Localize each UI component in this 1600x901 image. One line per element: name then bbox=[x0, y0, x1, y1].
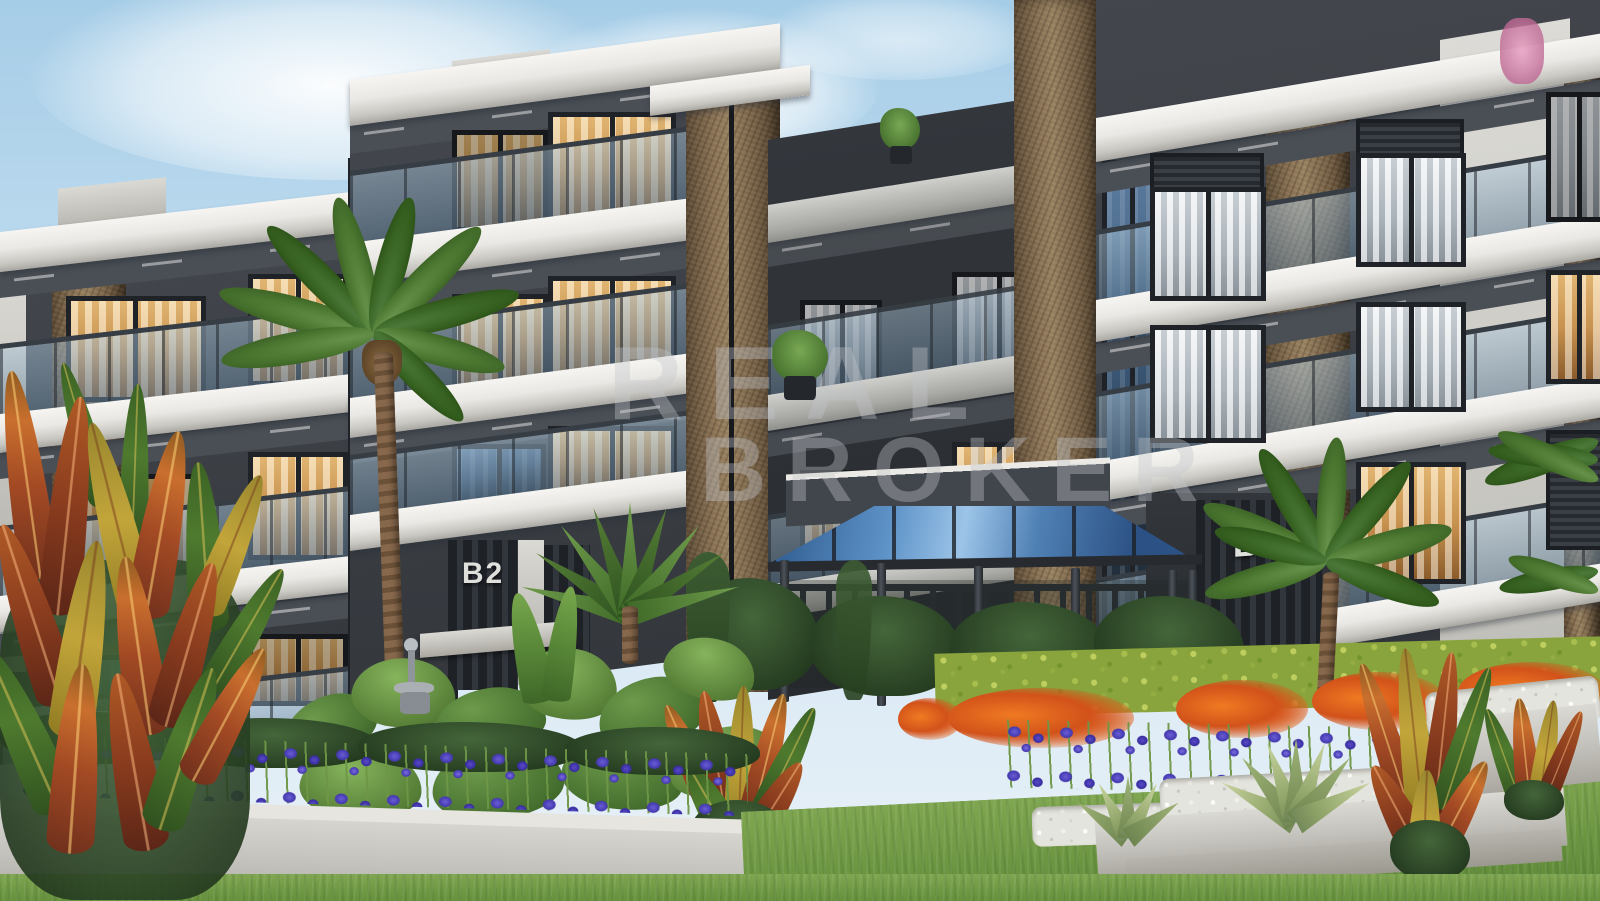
window-gray bbox=[1150, 187, 1266, 301]
balcony-plant bbox=[880, 108, 920, 150]
fountain-base bbox=[400, 692, 430, 714]
plant-pot bbox=[890, 146, 912, 164]
cypress-tree bbox=[836, 560, 872, 700]
lawn bbox=[0, 874, 1600, 901]
window-amber bbox=[1546, 270, 1600, 384]
window-gray bbox=[1356, 153, 1466, 267]
watermark-line2: BROKER bbox=[700, 424, 1219, 516]
architectural-render-scene: B2 B1 bbox=[0, 0, 1600, 901]
window-gray bbox=[1356, 302, 1466, 412]
shrub-base bbox=[1504, 780, 1564, 820]
pink-balcony-flowers bbox=[1500, 18, 1544, 84]
building-label-b2: B2 bbox=[448, 556, 518, 592]
shrub-base bbox=[1390, 820, 1470, 880]
fan-palm-trunk bbox=[622, 606, 638, 664]
fountain-column bbox=[408, 650, 415, 684]
window-gray bbox=[1546, 92, 1600, 222]
